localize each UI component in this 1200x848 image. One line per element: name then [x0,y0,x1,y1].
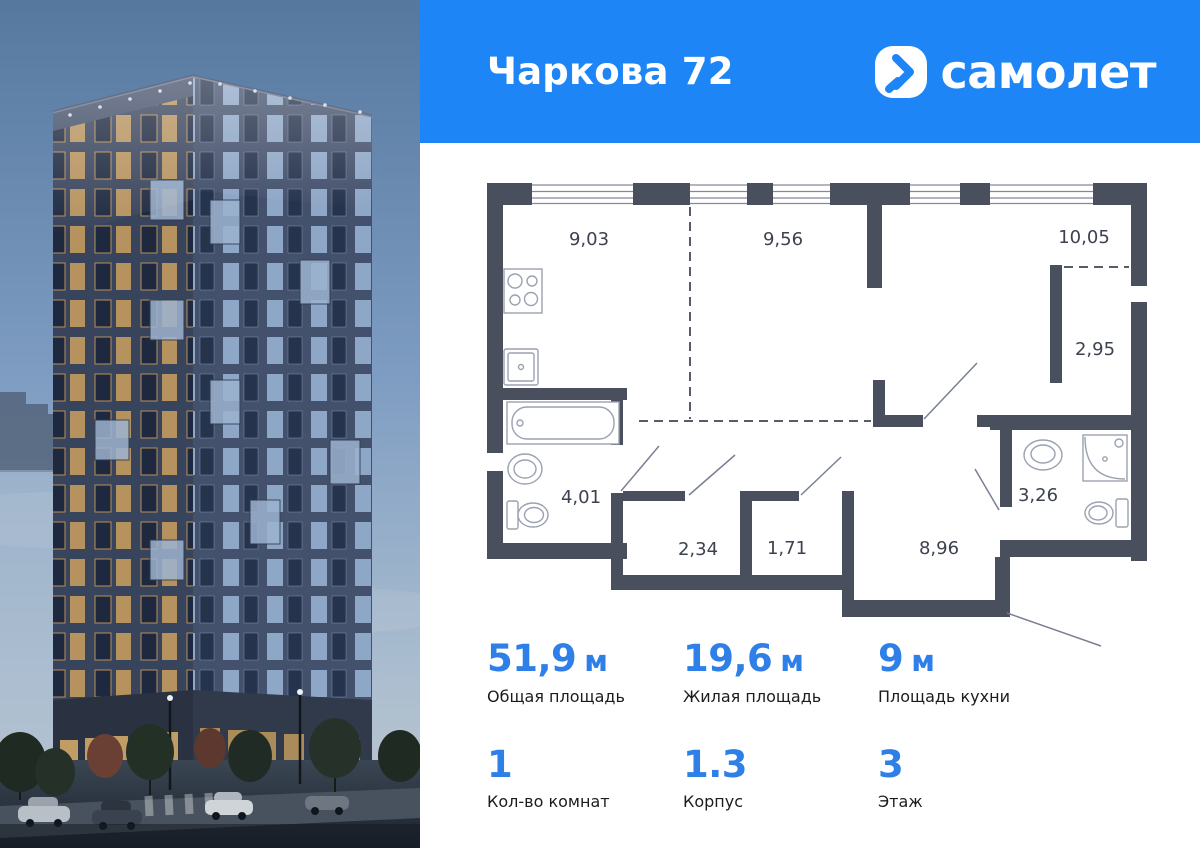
stat-total-area: 51,9м Общая площадь [487,640,683,706]
tower [53,76,372,796]
stat-rooms-value: 1 [487,746,683,784]
stat-floor-value: 3 [878,746,1138,784]
header-bar: Чаркова 72 самолет [420,0,1200,143]
brand-name: самолет [940,45,1156,99]
room-area-wardrobe: 2,95 [1075,339,1115,360]
room-area-storage-a: 2,34 [678,539,718,560]
stat-building: 1.3 Корпус [683,746,878,812]
stat-building-value: 1.3 [683,746,878,784]
stat-floor-label: Этаж [878,792,1138,811]
room-labels: 9,03 9,56 10,05 2,95 4,01 2,34 1,71 8,96… [561,227,1115,560]
room-area-kitchen-living: 9,03 [569,229,609,250]
stat-building-label: Корпус [683,792,878,811]
room-area-storage-b: 1,71 [767,538,807,559]
room-area-living-zone: 9,56 [763,229,803,250]
stat-kitchen-area-value: 9м [878,640,1138,678]
stat-total-area-label: Общая площадь [487,687,683,706]
room-area-bathroom-main: 4,01 [561,487,601,508]
stat-floor: 3 Этаж [878,746,1138,812]
listing-card: Чаркова 72 самолет [0,0,1200,848]
stat-kitchen-area-label: Площадь кухни [878,687,1138,706]
stat-living-area: 19,6м Жилая площадь [683,640,878,706]
stat-total-area-value: 51,9м [487,640,683,678]
room-area-bathroom-second: 3,26 [1018,485,1058,506]
room-area-hallway: 8,96 [919,538,959,559]
apartment-stats: 51,9м Общая площадь 19,6м Жилая площадь … [487,640,1138,811]
stat-living-area-label: Жилая площадь [683,687,878,706]
stat-rooms: 1 Кол-во комнат [487,746,683,812]
brand-logo: самолет [875,45,1156,99]
building-photo [0,0,420,848]
samolet-logo-icon [875,46,927,98]
stat-living-area-value: 19,6м [683,640,878,678]
project-title: Чаркова 72 [487,50,734,93]
stat-rooms-label: Кол-во комнат [487,792,683,811]
room-area-bedroom: 10,05 [1058,227,1110,248]
floor-plan: 9,03 9,56 10,05 2,95 4,01 2,34 1,71 8,96… [487,183,1147,648]
stat-kitchen-area: 9м Площадь кухни [878,640,1138,706]
